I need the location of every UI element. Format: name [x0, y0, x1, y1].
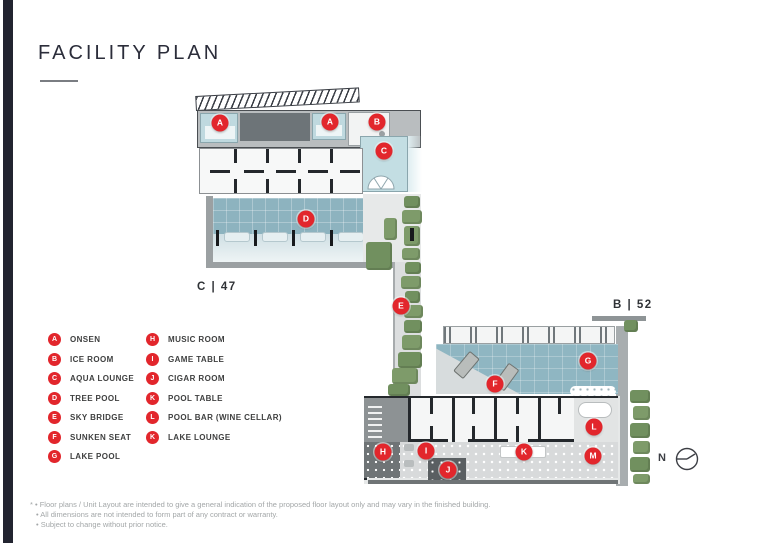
- legend-badge: K: [146, 431, 159, 444]
- building-top-edge: [592, 316, 646, 321]
- plan-marker-g: G: [580, 353, 597, 370]
- roof-hatch: [195, 87, 360, 111]
- legend-label: GAME TABLE: [168, 355, 224, 364]
- pool-post: [330, 230, 333, 246]
- plan-marker-i: I: [418, 443, 435, 460]
- zone-label-b52: B | 52: [613, 299, 653, 311]
- legend-item-music-room: H MUSIC ROOM: [146, 333, 282, 346]
- legend-label: CIGAR ROOM: [168, 374, 225, 383]
- bench: [404, 444, 414, 451]
- tree: [398, 352, 422, 368]
- legend-label: LAKE POOL: [70, 452, 120, 461]
- daybed: [300, 232, 326, 242]
- wall-segment: [234, 179, 237, 193]
- tree: [402, 248, 420, 260]
- plan-marker-c: C: [376, 143, 393, 160]
- legend-badge: K: [146, 392, 159, 405]
- compass-north-label: N: [658, 452, 667, 464]
- plan-marker-a1: A: [212, 115, 229, 132]
- bar-counter: [578, 402, 612, 418]
- legend-item-pool-bar: L POOL BAR (WINE CELLAR): [146, 411, 282, 424]
- wall-segment: [452, 398, 455, 442]
- tree: [404, 196, 420, 208]
- jacuzzi-fan: [366, 169, 396, 191]
- plan-marker-m: M: [585, 448, 602, 465]
- wall-segment: [408, 398, 411, 442]
- legend-item-lake-lounge: K LAKE LOUNGE: [146, 431, 282, 444]
- daybed: [338, 232, 364, 242]
- plan-marker-d: D: [298, 211, 315, 228]
- tree: [402, 335, 422, 350]
- legend-label: ICE ROOM: [70, 355, 114, 364]
- tree: [401, 276, 421, 289]
- footnote-line: * • Floor plans / Unit Layout are intend…: [30, 500, 490, 510]
- legend-label: ONSEN: [70, 335, 100, 344]
- footnotes: * • Floor plans / Unit Layout are intend…: [30, 500, 490, 530]
- plan-marker-f: F: [487, 376, 504, 393]
- legend-badge: J: [146, 372, 159, 385]
- legend-column-right: H MUSIC ROOM I GAME TABLE J CIGAR ROOM K…: [146, 333, 282, 444]
- tree: [630, 457, 650, 472]
- wall-segment: [276, 170, 296, 173]
- wall-segment: [340, 170, 360, 173]
- wall-segment: [266, 179, 269, 193]
- legend-item-sunken-seat: F SUNKEN SEAT: [48, 431, 134, 444]
- legend-badge: A: [48, 333, 61, 346]
- compass-icon: [674, 446, 700, 472]
- legend-label: MUSIC ROOM: [168, 335, 225, 344]
- legend-badge: F: [48, 431, 61, 444]
- legend-column-left: A ONSEN B ICE ROOM C AQUA LOUNGE D TREE …: [48, 333, 134, 463]
- pool-seat-strip: [570, 386, 616, 396]
- pool-post: [216, 230, 219, 246]
- legend-badge: G: [48, 450, 61, 463]
- legend-badge: C: [48, 372, 61, 385]
- tree: [633, 406, 650, 420]
- legend-label: POOL TABLE: [168, 394, 223, 403]
- zone-label-c47: C | 47: [197, 281, 237, 293]
- legend-label: SKY BRIDGE: [70, 413, 124, 422]
- legend-badge: I: [146, 353, 159, 366]
- daybed: [224, 232, 250, 242]
- tree: [630, 423, 650, 438]
- tree: [402, 210, 422, 224]
- pool-post: [254, 230, 257, 246]
- legend-item-sky-bridge: E SKY BRIDGE: [48, 411, 134, 424]
- wall-segment: [266, 149, 269, 163]
- upper-unit-rooms: [199, 148, 363, 194]
- legend-badge: E: [48, 411, 61, 424]
- compass: N: [658, 446, 702, 472]
- legend-item-cigar-room: J CIGAR ROOM: [146, 372, 282, 385]
- legend-item-game-table: I GAME TABLE: [146, 353, 282, 366]
- wall-segment: [516, 426, 519, 442]
- wall-segment: [330, 149, 333, 163]
- building-edge-fade: [408, 136, 422, 192]
- legend-item-pool-table: K POOL TABLE: [146, 392, 282, 405]
- wall-segment: [516, 398, 519, 414]
- pool-deck-edge: [206, 196, 213, 268]
- daybed: [262, 232, 288, 242]
- wall-segment: [244, 170, 264, 173]
- dark-room: [240, 113, 310, 141]
- plan-marker-a2: A: [322, 114, 339, 131]
- lower-unit-rooms: [408, 398, 574, 442]
- service-room-block: [364, 398, 408, 442]
- legend-item-aqua-lounge: C AQUA LOUNGE: [48, 372, 134, 385]
- legend-item-ice-room: B ICE ROOM: [48, 353, 134, 366]
- tree: [388, 384, 410, 396]
- page-title: FACILITY PLAN: [38, 42, 221, 65]
- wall-segment: [430, 398, 433, 414]
- tree: [366, 242, 392, 270]
- wall-segment: [298, 179, 301, 193]
- planter-slot: [410, 228, 414, 241]
- legend-item-onsen: A ONSEN: [48, 333, 134, 346]
- tree: [405, 262, 421, 274]
- window-strip: [443, 326, 615, 344]
- wall-segment: [472, 398, 475, 414]
- legend-label: TREE POOL: [70, 394, 120, 403]
- wall-segment: [558, 398, 561, 414]
- legend-badge: D: [48, 392, 61, 405]
- legend-label: SUNKEN SEAT: [70, 433, 131, 442]
- tree: [624, 320, 638, 332]
- lower-building: [364, 396, 620, 484]
- wall-segment: [308, 170, 328, 173]
- tree: [633, 441, 650, 454]
- tree: [633, 474, 650, 484]
- legend-badge: L: [146, 411, 159, 424]
- building-bottom-edge: [368, 480, 618, 484]
- tree: [384, 218, 397, 240]
- legend-label: AQUA LOUNGE: [70, 374, 134, 383]
- wall-segment: [494, 398, 497, 442]
- legend-label: POOL BAR (WINE CELLAR): [168, 413, 282, 422]
- legend-badge: H: [146, 333, 159, 346]
- wall-segment: [234, 149, 237, 163]
- footnote-line: • Subject to change without prior notice…: [30, 520, 490, 530]
- legend-item-tree-pool: D TREE POOL: [48, 392, 134, 405]
- page-accent-bar: [3, 0, 13, 543]
- plan-marker-l: L: [586, 419, 603, 436]
- bench: [404, 460, 414, 467]
- plan-marker-e: E: [393, 298, 410, 315]
- plan-marker-j: J: [440, 462, 457, 479]
- window-grid: [368, 404, 382, 438]
- plan-marker-k: K: [516, 444, 533, 461]
- wall-segment: [298, 149, 301, 163]
- tree: [392, 368, 418, 384]
- title-underline: [40, 80, 78, 82]
- pool-post: [292, 230, 295, 246]
- tree: [404, 320, 422, 333]
- footnote-line: • All dimensions are not intended to for…: [30, 510, 490, 520]
- plan-marker-h: H: [375, 444, 392, 461]
- tree: [630, 390, 650, 403]
- legend-badge: B: [48, 353, 61, 366]
- wall-segment: [538, 398, 541, 442]
- plan-marker-b: B: [369, 114, 386, 131]
- wall-segment: [210, 170, 230, 173]
- legend-item-lake-pool: G LAKE POOL: [48, 450, 134, 463]
- wall-segment: [330, 179, 333, 193]
- legend-label: LAKE LOUNGE: [168, 433, 231, 442]
